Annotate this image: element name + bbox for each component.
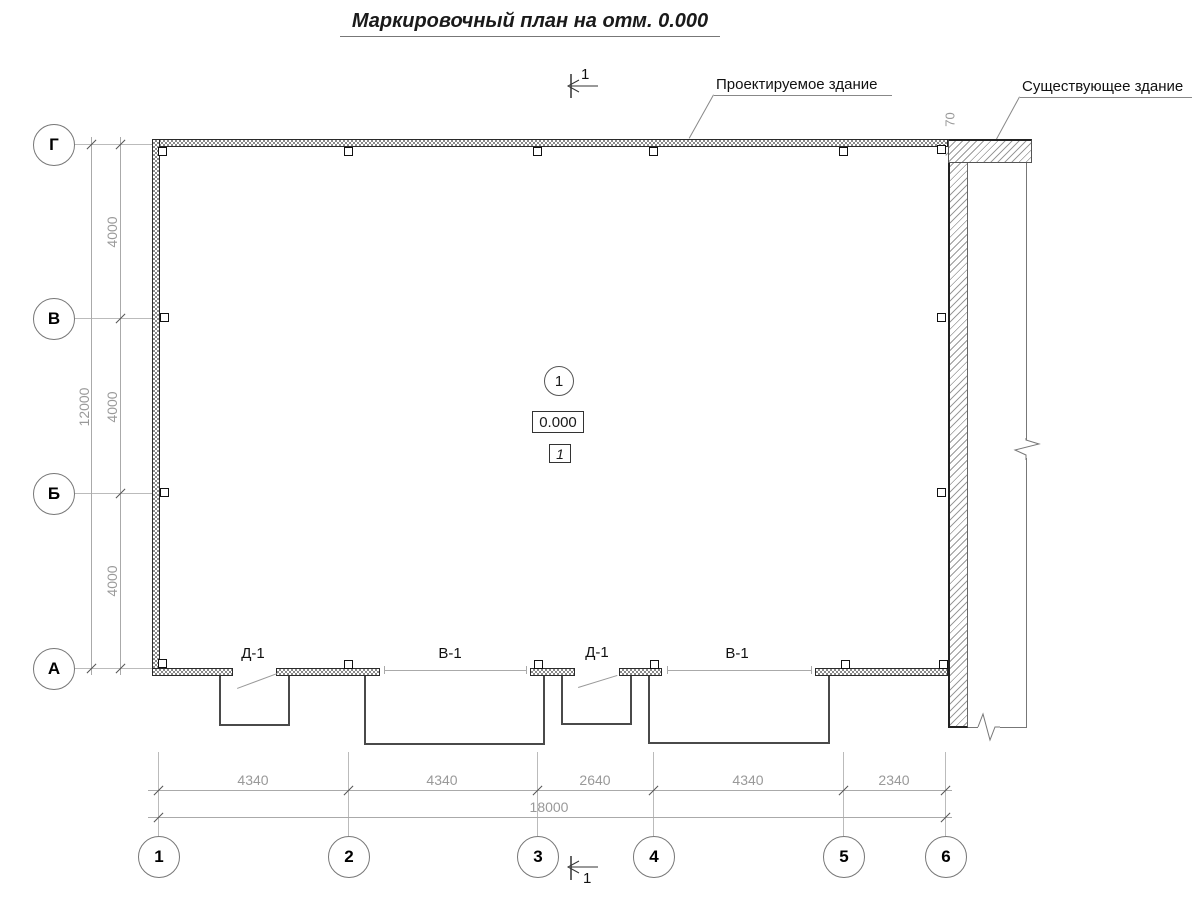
break-line-icon [978, 712, 1000, 742]
dim-value-h: 4340 [402, 772, 482, 788]
axis-bubble-row: В [33, 298, 75, 340]
column-marker [937, 488, 946, 497]
dim-line-h-total [148, 817, 952, 818]
axis-bubble-col: 3 [517, 836, 559, 878]
existing-outline-bottom-a [968, 727, 978, 728]
wall-top [152, 139, 948, 147]
existing-building-leader-underline [1020, 97, 1192, 98]
axis-line [73, 318, 152, 319]
column-marker [344, 147, 353, 156]
column-marker [160, 313, 169, 322]
axis-bubble-col: 6 [925, 836, 967, 878]
axis-extension-line [653, 752, 654, 836]
column-marker [158, 147, 167, 156]
axis-extension-line [348, 752, 349, 836]
wall-bottom-seg1 [152, 668, 233, 676]
gate-opening-end-tick [811, 666, 812, 674]
gate-opening-line [384, 670, 526, 671]
existing-outline-bottom-b [1000, 727, 1027, 728]
existing-outline-right-lower [1026, 458, 1027, 728]
column-marker [344, 660, 353, 669]
wall-bottom-seg4 [619, 668, 662, 676]
floor-plan-drawing: Маркировочный план на отм. 0.000 1 Проек… [0, 0, 1200, 900]
column-marker [534, 660, 543, 669]
column-marker [841, 660, 850, 669]
column-marker [839, 147, 848, 156]
designed-building-label: Проектируемое здание [716, 76, 877, 93]
wall-bottom-seg3 [530, 668, 575, 676]
room-number-mark: 1 [549, 444, 571, 463]
elevation-mark: 0.000 [532, 411, 584, 433]
dim-value-v: 4000 [104, 202, 120, 262]
axis-bubble-col: 4 [633, 836, 675, 878]
gate-opening-end-tick [384, 666, 385, 674]
gate-opening-line [667, 670, 811, 671]
drawing-title: Маркировочный план на отм. 0.000 [340, 10, 720, 37]
dim-value-v-total: 12000 [76, 371, 92, 443]
wall-left [152, 139, 160, 676]
axis-extension-line [537, 752, 538, 836]
door-porch [561, 676, 632, 725]
section-mark-bottom-number: 1 [583, 870, 591, 887]
column-marker [650, 660, 659, 669]
axis-line [73, 668, 152, 669]
wall-bottom-seg2 [276, 668, 380, 676]
opening-label-v1: В-1 [717, 645, 757, 662]
dim-value-h: 2340 [854, 772, 934, 788]
break-line-icon [1012, 438, 1048, 460]
column-marker [160, 488, 169, 497]
designed-building-leader-line [689, 95, 714, 139]
column-marker [937, 145, 946, 154]
dim-value-h: 2640 [555, 772, 635, 788]
dim-value-v: 4000 [104, 377, 120, 437]
column-marker [937, 313, 946, 322]
axis-bubble-row: Б [33, 473, 75, 515]
opening-label-d1: Д-1 [577, 644, 617, 661]
axis-bubble-row: Г [33, 124, 75, 166]
dim-value-h: 4340 [708, 772, 788, 788]
section-mark-bottom-icon [560, 852, 604, 886]
column-marker [649, 147, 658, 156]
section-mark-top-number: 1 [581, 66, 589, 83]
wall-bottom-seg5 [815, 668, 948, 676]
axis-bubble-col: 1 [138, 836, 180, 878]
axis-extension-line [843, 752, 844, 836]
door-porch [219, 676, 290, 726]
axis-bubble-col: 2 [328, 836, 370, 878]
joint-dimension-text: 70 [943, 106, 958, 134]
opening-label-v1: В-1 [430, 645, 470, 662]
column-marker [533, 147, 542, 156]
existing-wall-top-bar [948, 139, 1032, 163]
gate-ramp [364, 676, 545, 745]
dim-value-h-total: 18000 [509, 799, 589, 815]
axis-extension-line [158, 752, 159, 836]
dim-value-v: 4000 [104, 551, 120, 611]
dim-line-v-segments [120, 137, 121, 675]
axis-bubble-col: 5 [823, 836, 865, 878]
axis-bubble-row: А [33, 648, 75, 690]
axis-line [73, 144, 152, 145]
opening-label-d1: Д-1 [233, 645, 273, 662]
existing-outline-right-upper [1026, 163, 1027, 440]
axis-line [73, 493, 152, 494]
dim-line-h-segments [148, 790, 952, 791]
gate-opening-end-tick [526, 666, 527, 674]
designed-building-leader-underline [714, 95, 892, 96]
gate-opening-end-tick [667, 666, 668, 674]
existing-wall-strip [948, 139, 968, 728]
dim-value-h: 4340 [213, 772, 293, 788]
column-marker [158, 659, 167, 668]
column-marker [939, 660, 948, 669]
axis-extension-line [945, 752, 946, 836]
room-axis-bubble: 1 [544, 366, 574, 396]
existing-building-label: Существующее здание [1022, 78, 1183, 95]
gate-ramp [648, 676, 830, 744]
